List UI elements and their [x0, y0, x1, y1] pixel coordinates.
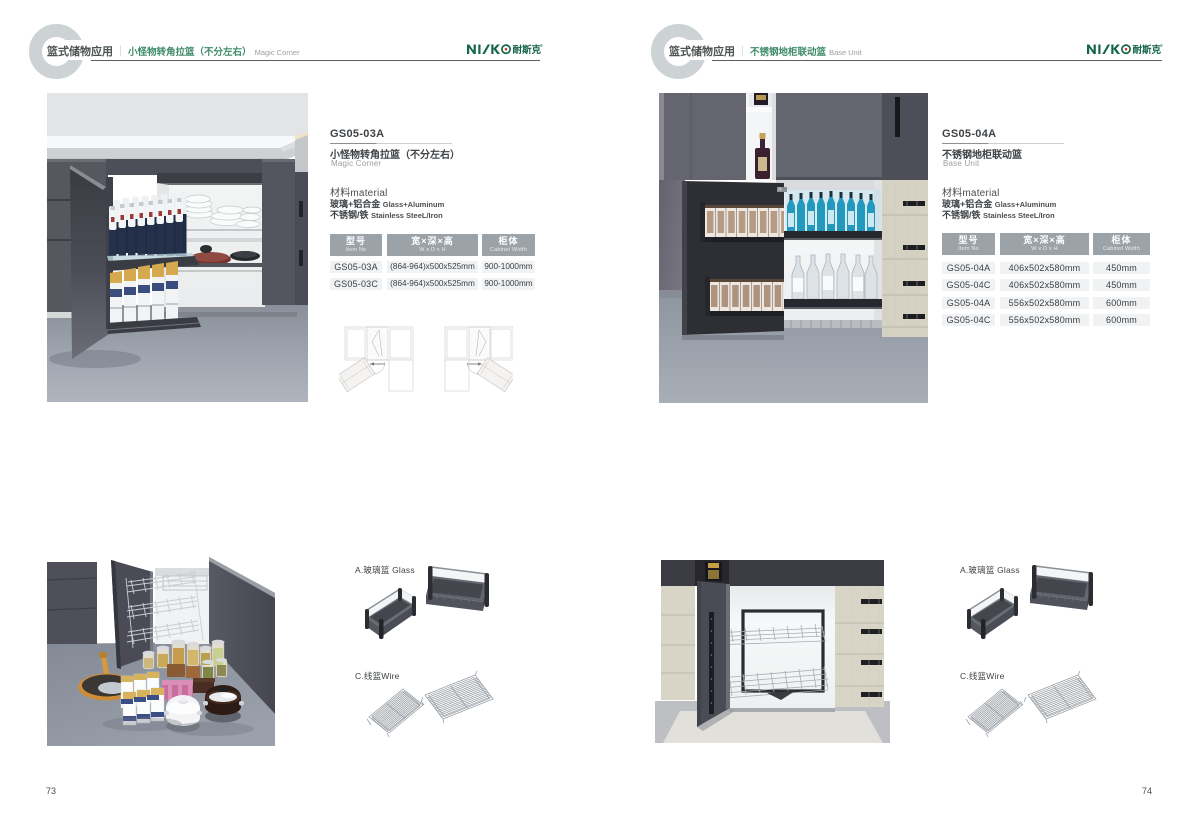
svg-text:耐斯克: 耐斯克: [1133, 44, 1162, 56]
svg-text:®: ®: [1160, 43, 1163, 48]
svg-text:耐斯克: 耐斯克: [513, 44, 542, 56]
svg-text:®: ®: [540, 43, 543, 48]
